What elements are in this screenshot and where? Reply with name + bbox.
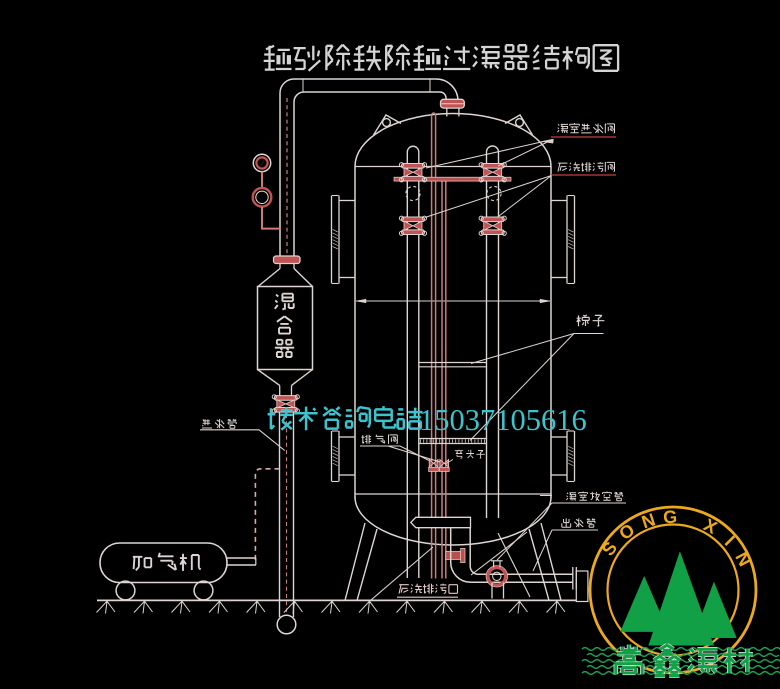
svg-text:G: G	[663, 507, 678, 527]
svg-text:15037105616: 15037105616	[419, 403, 587, 437]
